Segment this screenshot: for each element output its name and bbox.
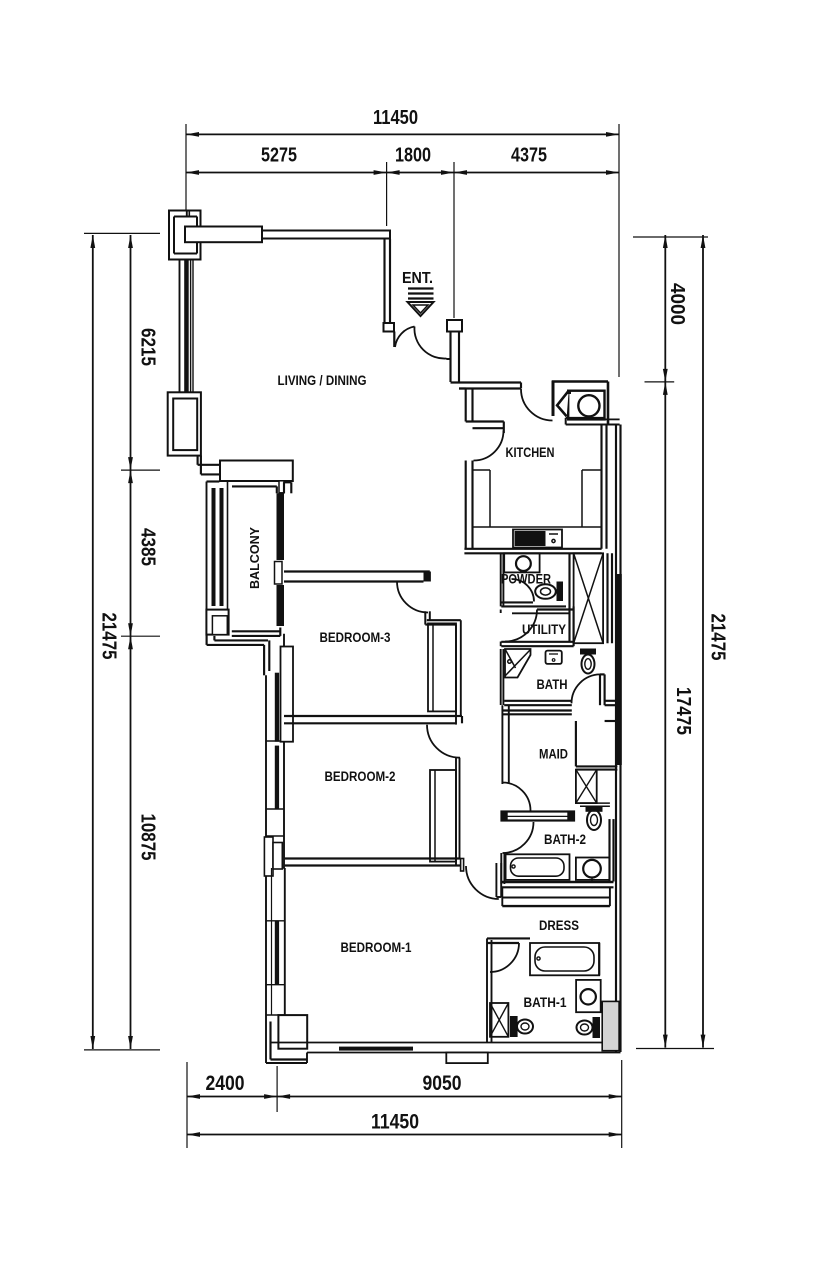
svg-text:BEDROOM-3: BEDROOM-3: [320, 630, 391, 645]
svg-text:ENT.: ENT.: [402, 270, 433, 287]
svg-text:4000: 4000: [666, 283, 688, 325]
svg-text:UTILITY: UTILITY: [522, 622, 566, 637]
svg-text:11450: 11450: [371, 1110, 419, 1134]
svg-text:BATH-2: BATH-2: [544, 832, 586, 847]
svg-text:1800: 1800: [395, 145, 431, 167]
svg-text:5275: 5275: [261, 145, 297, 167]
svg-text:11450: 11450: [373, 107, 418, 129]
svg-text:2400: 2400: [206, 1071, 245, 1095]
svg-text:DRESS: DRESS: [539, 918, 579, 933]
svg-text:4385: 4385: [137, 528, 159, 566]
svg-text:6215: 6215: [137, 328, 159, 366]
svg-text:MAID: MAID: [539, 746, 568, 761]
svg-text:4375: 4375: [511, 145, 547, 167]
svg-text:BATH-1: BATH-1: [524, 995, 567, 1010]
svg-text:17475: 17475: [672, 687, 694, 735]
svg-text:21475: 21475: [707, 614, 729, 661]
svg-text:9050: 9050: [423, 1071, 462, 1095]
svg-text:LIVING / DINING: LIVING / DINING: [278, 373, 367, 388]
svg-text:BEDROOM-1: BEDROOM-1: [341, 940, 412, 955]
svg-text:21475: 21475: [98, 613, 120, 660]
svg-text:10875: 10875: [137, 814, 159, 861]
svg-text:BALCONY: BALCONY: [247, 527, 262, 589]
svg-text:BATH: BATH: [537, 677, 568, 692]
svg-text:KITCHEN: KITCHEN: [506, 445, 555, 460]
svg-text:BEDROOM-2: BEDROOM-2: [325, 769, 396, 784]
